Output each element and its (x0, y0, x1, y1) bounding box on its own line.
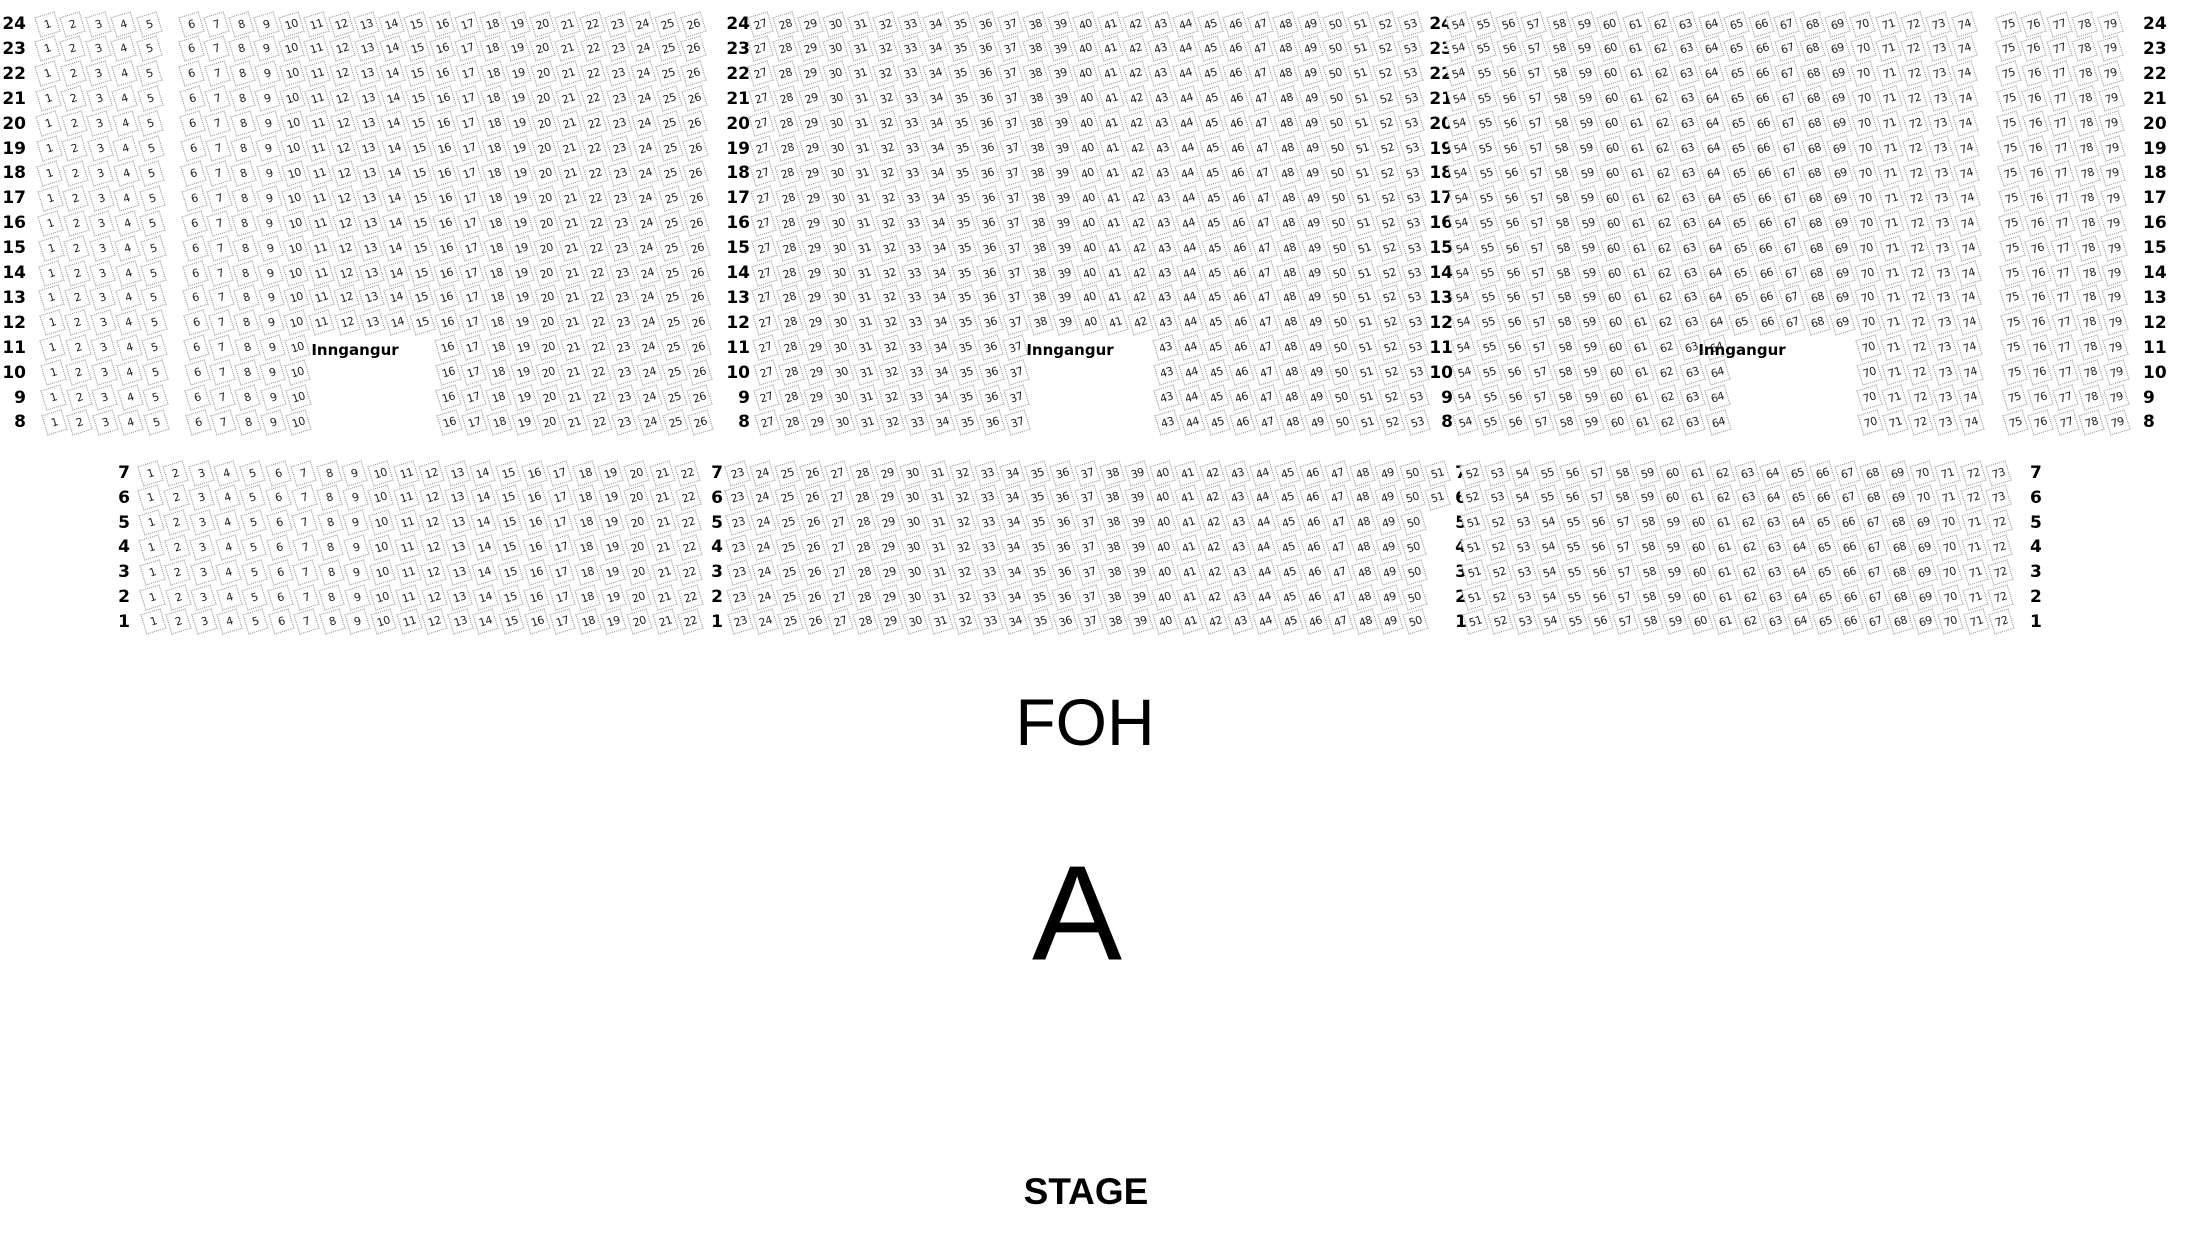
seat[interactable]: 39 (1127, 609, 1153, 635)
seat[interactable]: 63 (1673, 36, 1699, 62)
seat[interactable]: 64 (1759, 460, 1785, 486)
seat[interactable]: 47 (1324, 460, 1350, 486)
seat[interactable]: 11 (306, 135, 332, 161)
seat[interactable]: 72 (1901, 61, 1927, 87)
seat[interactable]: 56 (1502, 384, 1528, 410)
seat[interactable]: 4 (215, 509, 241, 535)
seat[interactable]: 60 (1603, 359, 1629, 385)
seat[interactable]: 19 (506, 135, 532, 161)
seat[interactable]: 10 (278, 11, 304, 37)
seat[interactable]: 40 (1149, 485, 1175, 511)
seat[interactable]: 38 (1102, 609, 1128, 635)
seat[interactable]: 79 (2102, 310, 2128, 336)
seat[interactable]: 67 (1779, 285, 1805, 311)
seat[interactable]: 68 (1886, 509, 1912, 535)
seat[interactable]: 73 (1929, 185, 1955, 211)
seat[interactable]: 10 (367, 460, 393, 486)
seat[interactable]: 34 (999, 485, 1025, 511)
seat[interactable]: 75 (2000, 285, 2026, 311)
seat[interactable]: 75 (2002, 384, 2028, 410)
seat[interactable]: 35 (1024, 460, 1050, 486)
seat[interactable]: 23 (727, 609, 753, 635)
seat[interactable]: 63 (1761, 559, 1787, 585)
seat[interactable]: 17 (460, 335, 486, 361)
seat[interactable]: 28 (851, 584, 877, 610)
seat[interactable]: 23 (610, 285, 636, 311)
seat[interactable]: 29 (800, 210, 826, 236)
seat[interactable]: 17 (457, 185, 483, 211)
seat[interactable]: 65 (1785, 485, 1811, 511)
seat[interactable]: 29 (802, 285, 828, 311)
seat[interactable]: 65 (1725, 135, 1751, 161)
seat[interactable]: 46 (1226, 260, 1252, 286)
seat[interactable]: 25 (655, 36, 681, 62)
seat[interactable]: 6 (179, 86, 205, 112)
seat[interactable]: 60 (1603, 335, 1629, 361)
seat[interactable]: 38 (1027, 285, 1053, 311)
seat[interactable]: 59 (1574, 135, 1600, 161)
seat[interactable]: 69 (1828, 235, 1854, 261)
seat[interactable]: 34 (922, 36, 948, 62)
seat[interactable]: 35 (1026, 559, 1052, 585)
seat[interactable]: 44 (1252, 609, 1278, 635)
seat[interactable]: 8 (228, 11, 254, 37)
seat[interactable]: 38 (1025, 160, 1051, 186)
seat[interactable]: 42 (1202, 609, 1228, 635)
seat[interactable]: 33 (975, 509, 1001, 535)
seat[interactable]: 68 (1804, 310, 1830, 336)
seat[interactable]: 13 (354, 36, 380, 62)
seat[interactable]: 6 (178, 11, 204, 37)
seat[interactable]: 70 (1938, 609, 1964, 635)
seat[interactable]: 60 (1604, 409, 1630, 435)
seat[interactable]: 61 (1712, 584, 1738, 610)
seat[interactable]: 19 (504, 11, 530, 37)
seat[interactable]: 16 (432, 210, 458, 236)
seat[interactable]: 58 (1553, 384, 1579, 410)
seat[interactable]: 21 (650, 534, 676, 560)
seat[interactable]: 63 (1673, 61, 1699, 87)
seat[interactable]: 59 (1572, 61, 1598, 87)
seat[interactable]: 47 (1248, 61, 1274, 87)
seat[interactable]: 28 (849, 460, 875, 486)
seat[interactable]: 42 (1200, 509, 1226, 535)
seat[interactable]: 53 (1400, 160, 1426, 186)
seat[interactable]: 47 (1251, 235, 1277, 261)
seat[interactable]: 59 (1576, 260, 1602, 286)
seat[interactable]: 68 (1801, 135, 1827, 161)
seat[interactable]: 54 (1446, 61, 1472, 87)
seat[interactable]: 18 (485, 335, 511, 361)
seat[interactable]: 60 (1602, 285, 1628, 311)
seat[interactable]: 36 (975, 160, 1001, 186)
seat[interactable]: 21 (650, 509, 676, 535)
seat[interactable]: 35 (953, 335, 979, 361)
seat[interactable]: 62 (1652, 260, 1678, 286)
seat[interactable]: 17 (460, 359, 486, 385)
seat[interactable]: 61 (1624, 110, 1650, 136)
seat[interactable]: 33 (902, 310, 928, 336)
seat[interactable]: 79 (2097, 11, 2123, 37)
seat[interactable]: 50 (1329, 409, 1355, 435)
seat[interactable]: 27 (750, 185, 776, 211)
seat[interactable]: 18 (480, 86, 506, 112)
seat[interactable]: 57 (1522, 61, 1548, 87)
seat[interactable]: 56 (1497, 110, 1523, 136)
seat[interactable]: 13 (358, 260, 384, 286)
seat[interactable]: 49 (1304, 409, 1330, 435)
seat[interactable]: 1 (139, 584, 165, 610)
seat[interactable]: 5 (137, 61, 163, 87)
seat[interactable]: 23 (606, 110, 632, 136)
seat[interactable]: 9 (257, 210, 283, 236)
seat[interactable]: 43 (1152, 310, 1178, 336)
seat[interactable]: 42 (1124, 110, 1150, 136)
seat[interactable]: 60 (1601, 260, 1627, 286)
seat[interactable]: 66 (1749, 61, 1775, 87)
seat[interactable]: 14 (471, 534, 497, 560)
seat[interactable]: 26 (682, 110, 708, 136)
seat[interactable]: 59 (1576, 285, 1602, 311)
seat[interactable]: 1 (41, 409, 67, 435)
seat[interactable]: 50 (1399, 460, 1425, 486)
seat[interactable]: 43 (1153, 359, 1179, 385)
seat[interactable]: 14 (382, 185, 408, 211)
seat[interactable]: 24 (633, 185, 659, 211)
seat[interactable]: 69 (1827, 160, 1853, 186)
seat[interactable]: 52 (1486, 584, 1512, 610)
seat[interactable]: 22 (586, 359, 612, 385)
seat[interactable]: 42 (1126, 235, 1152, 261)
seat[interactable]: 41 (1102, 285, 1128, 311)
seat[interactable]: 14 (472, 559, 498, 585)
seat[interactable]: 31 (853, 359, 879, 385)
seat[interactable]: 37 (999, 135, 1025, 161)
seat[interactable]: 20 (533, 235, 559, 261)
seat[interactable]: 78 (2073, 86, 2099, 112)
seat[interactable]: 64 (1705, 384, 1731, 410)
seat[interactable]: 58 (1551, 285, 1577, 311)
seat[interactable]: 25 (661, 335, 687, 361)
seat[interactable]: 77 (2051, 310, 2077, 336)
seat[interactable]: 41 (1102, 310, 1128, 336)
seat[interactable]: 69 (1826, 86, 1852, 112)
seat[interactable]: 51 (1353, 359, 1379, 385)
seat[interactable]: 1 (37, 185, 63, 211)
seat[interactable]: 15 (406, 160, 432, 186)
seat[interactable]: 14 (382, 210, 408, 236)
seat[interactable]: 35 (1025, 534, 1051, 560)
seat[interactable]: 62 (1650, 135, 1676, 161)
seat[interactable]: 9 (259, 359, 285, 385)
seat[interactable]: 58 (1551, 310, 1577, 336)
seat[interactable]: 3 (188, 460, 214, 486)
seat[interactable]: 28 (775, 185, 801, 211)
seat[interactable]: 3 (90, 285, 116, 311)
seat[interactable]: 28 (776, 260, 802, 286)
seat[interactable]: 14 (380, 86, 406, 112)
seat[interactable]: 32 (872, 11, 898, 37)
seat[interactable]: 51 (1424, 460, 1450, 486)
seat[interactable]: 30 (902, 609, 928, 635)
seat[interactable]: 33 (897, 36, 923, 62)
seat[interactable]: 56 (1500, 285, 1526, 311)
seat[interactable]: 77 (2053, 384, 2079, 410)
seat[interactable]: 58 (1552, 359, 1578, 385)
seat[interactable]: 35 (950, 185, 976, 211)
seat[interactable]: 71 (1962, 584, 1988, 610)
seat[interactable]: 50 (1402, 609, 1428, 635)
seat[interactable]: 47 (1254, 409, 1280, 435)
seat[interactable]: 75 (2000, 310, 2026, 336)
seat[interactable]: 50 (1324, 110, 1350, 136)
seat[interactable]: 22 (583, 210, 609, 236)
seat[interactable]: 56 (1500, 260, 1526, 286)
seat[interactable]: 11 (307, 235, 333, 261)
seat[interactable]: 59 (1662, 609, 1688, 635)
seat[interactable]: 54 (1451, 335, 1477, 361)
seat[interactable]: 39 (1125, 534, 1151, 560)
seat[interactable]: 30 (900, 509, 926, 535)
seat[interactable]: 22 (675, 485, 701, 511)
seat[interactable]: 73 (1928, 135, 1954, 161)
seat[interactable]: 72 (1903, 185, 1929, 211)
seat[interactable]: 34 (928, 359, 954, 385)
seat[interactable]: 48 (1351, 584, 1377, 610)
seat[interactable]: 36 (978, 335, 1004, 361)
seat[interactable]: 55 (1472, 110, 1498, 136)
seat[interactable]: 16 (430, 86, 456, 112)
seat[interactable]: 29 (797, 36, 823, 62)
seat[interactable]: 55 (1472, 135, 1498, 161)
seat[interactable]: 64 (1699, 86, 1725, 112)
seat[interactable]: 26 (683, 185, 709, 211)
seat[interactable]: 68 (1802, 185, 1828, 211)
seat[interactable]: 44 (1173, 86, 1199, 112)
seat[interactable]: 5 (143, 384, 169, 410)
seat[interactable]: 33 (976, 584, 1002, 610)
seat[interactable]: 11 (307, 210, 333, 236)
seat[interactable]: 25 (774, 485, 800, 511)
seat[interactable]: 42 (1125, 210, 1151, 236)
seat[interactable]: 20 (531, 86, 557, 112)
seat[interactable]: 30 (828, 335, 854, 361)
seat[interactable]: 36 (979, 409, 1005, 435)
seat[interactable]: 68 (1804, 285, 1830, 311)
seat[interactable]: 12 (419, 509, 445, 535)
seat[interactable]: 4 (115, 260, 141, 286)
seat[interactable]: 27 (752, 285, 778, 311)
seat[interactable]: 12 (332, 210, 358, 236)
seat[interactable]: 57 (1525, 235, 1551, 261)
seat[interactable]: 19 (510, 310, 536, 336)
seat[interactable]: 53 (1402, 310, 1428, 336)
seat[interactable]: 43 (1147, 36, 1173, 62)
seat[interactable]: 33 (904, 384, 930, 410)
seat[interactable]: 16 (431, 110, 457, 136)
seat[interactable]: 56 (1587, 609, 1613, 635)
seat[interactable]: 72 (1906, 335, 1932, 361)
seat[interactable]: 62 (1709, 460, 1735, 486)
seat[interactable]: 68 (1888, 609, 1914, 635)
seat[interactable]: 38 (1101, 584, 1127, 610)
seat[interactable]: 54 (1537, 584, 1563, 610)
seat[interactable]: 30 (827, 285, 853, 311)
seat[interactable]: 56 (1503, 409, 1529, 435)
seat[interactable]: 37 (1076, 584, 1102, 610)
seat[interactable]: 76 (2024, 235, 2050, 261)
seat[interactable]: 22 (581, 86, 607, 112)
seat[interactable]: 20 (534, 260, 560, 286)
seat[interactable]: 21 (557, 135, 583, 161)
seat[interactable]: 13 (354, 11, 380, 37)
seat[interactable]: 64 (1704, 359, 1730, 385)
seat[interactable]: 69 (1830, 310, 1856, 336)
seat[interactable]: 21 (559, 285, 585, 311)
seat[interactable]: 20 (532, 135, 558, 161)
seat[interactable]: 59 (1578, 359, 1604, 385)
seat[interactable]: 34 (999, 460, 1025, 486)
seat[interactable]: 62 (1736, 559, 1762, 585)
seat[interactable]: 30 (901, 559, 927, 585)
seat[interactable]: 1 (39, 310, 65, 336)
seat[interactable]: 61 (1710, 509, 1736, 535)
seat[interactable]: 51 (1351, 235, 1377, 261)
seat[interactable]: 35 (1024, 485, 1050, 511)
seat[interactable]: 51 (1348, 61, 1374, 87)
seat[interactable]: 37 (1003, 359, 1029, 385)
seat[interactable]: 57 (1584, 460, 1610, 486)
seat[interactable]: 77 (2052, 335, 2078, 361)
seat[interactable]: 62 (1710, 485, 1736, 511)
seat[interactable]: 25 (777, 609, 803, 635)
seat[interactable]: 68 (1803, 235, 1829, 261)
seat[interactable]: 57 (1527, 335, 1553, 361)
seat[interactable]: 61 (1628, 335, 1654, 361)
seat[interactable]: 22 (584, 260, 610, 286)
seat[interactable]: 23 (726, 584, 752, 610)
seat[interactable]: 57 (1523, 160, 1549, 186)
seat[interactable]: 43 (1224, 460, 1250, 486)
seat[interactable]: 10 (369, 534, 395, 560)
seat[interactable]: 5 (242, 584, 268, 610)
seat[interactable]: 61 (1629, 384, 1655, 410)
seat[interactable]: 13 (359, 310, 385, 336)
seat[interactable]: 75 (1999, 235, 2025, 261)
seat[interactable]: 9 (345, 609, 371, 635)
seat[interactable]: 77 (2050, 260, 2076, 286)
seat[interactable]: 57 (1612, 584, 1638, 610)
seat[interactable]: 2 (63, 210, 89, 236)
seat[interactable]: 14 (381, 160, 407, 186)
seat[interactable]: 6 (185, 384, 211, 410)
seat[interactable]: 39 (1049, 110, 1075, 136)
seat[interactable]: 48 (1350, 534, 1376, 560)
seat[interactable]: 45 (1201, 260, 1227, 286)
seat[interactable]: 47 (1251, 260, 1277, 286)
seat[interactable]: 78 (2077, 310, 2103, 336)
seat[interactable]: 34 (1000, 534, 1026, 560)
seat[interactable]: 51 (1354, 384, 1380, 410)
seat[interactable]: 32 (878, 359, 904, 385)
seat[interactable]: 54 (1451, 359, 1477, 385)
seat[interactable]: 76 (2025, 285, 2051, 311)
seat[interactable]: 62 (1737, 609, 1763, 635)
seat[interactable]: 47 (1254, 384, 1280, 410)
seat[interactable]: 75 (2001, 335, 2027, 361)
seat[interactable]: 42 (1124, 135, 1150, 161)
seat[interactable]: 43 (1150, 160, 1176, 186)
seat[interactable]: 19 (599, 509, 625, 535)
seat[interactable]: 66 (1750, 86, 1776, 112)
seat[interactable]: 53 (1398, 61, 1424, 87)
seat[interactable]: 59 (1661, 534, 1687, 560)
seat[interactable]: 15 (404, 11, 430, 37)
seat[interactable]: 50 (1329, 384, 1355, 410)
seat[interactable]: 69 (1912, 559, 1938, 585)
seat[interactable]: 70 (1853, 210, 1879, 236)
seat[interactable]: 70 (1855, 285, 1881, 311)
seat[interactable]: 64 (1760, 485, 1786, 511)
seat[interactable]: 69 (1828, 185, 1854, 211)
seat[interactable]: 37 (1077, 609, 1103, 635)
seat[interactable]: 57 (1521, 11, 1547, 37)
seat[interactable]: 44 (1175, 210, 1201, 236)
seat[interactable]: 66 (1836, 534, 1862, 560)
seat[interactable]: 25 (659, 260, 685, 286)
seat[interactable]: 63 (1676, 185, 1702, 211)
seat[interactable]: 22 (585, 335, 611, 361)
seat[interactable]: 64 (1787, 559, 1813, 585)
seat[interactable]: 49 (1298, 61, 1324, 87)
seat[interactable]: 56 (1496, 61, 1522, 87)
seat[interactable]: 68 (1799, 11, 1825, 37)
seat[interactable]: 61 (1626, 210, 1652, 236)
seat[interactable]: 5 (136, 11, 162, 37)
seat[interactable]: 70 (1855, 310, 1881, 336)
seat[interactable]: 29 (801, 235, 827, 261)
seat[interactable]: 18 (575, 609, 601, 635)
seat[interactable]: 2 (63, 185, 89, 211)
seat[interactable]: 39 (1051, 235, 1077, 261)
seat[interactable]: 54 (1450, 310, 1476, 336)
seat[interactable]: 13 (355, 86, 381, 112)
seat[interactable]: 4 (117, 384, 143, 410)
seat[interactable]: 2 (62, 135, 88, 161)
seat[interactable]: 2 (66, 359, 92, 385)
seat[interactable]: 31 (852, 285, 878, 311)
seat[interactable]: 70 (1852, 135, 1878, 161)
seat[interactable]: 78 (2074, 135, 2100, 161)
seat[interactable]: 36 (1051, 584, 1077, 610)
seat[interactable]: 13 (357, 185, 383, 211)
seat[interactable]: 70 (1851, 110, 1877, 136)
seat[interactable]: 74 (1953, 135, 1979, 161)
seat[interactable]: 60 (1598, 110, 1624, 136)
seat[interactable]: 6 (180, 135, 206, 161)
seat[interactable]: 40 (1077, 285, 1103, 311)
seat[interactable]: 36 (1049, 460, 1075, 486)
seat[interactable]: 72 (1905, 285, 1931, 311)
seat[interactable]: 71 (1962, 559, 1988, 585)
seat[interactable]: 21 (651, 559, 677, 585)
seat[interactable]: 41 (1099, 110, 1125, 136)
seat[interactable]: 66 (1837, 584, 1863, 610)
seat[interactable]: 48 (1278, 335, 1304, 361)
seat[interactable]: 76 (2027, 384, 2053, 410)
seat[interactable]: 1 (40, 335, 66, 361)
seat[interactable]: 14 (384, 285, 410, 311)
